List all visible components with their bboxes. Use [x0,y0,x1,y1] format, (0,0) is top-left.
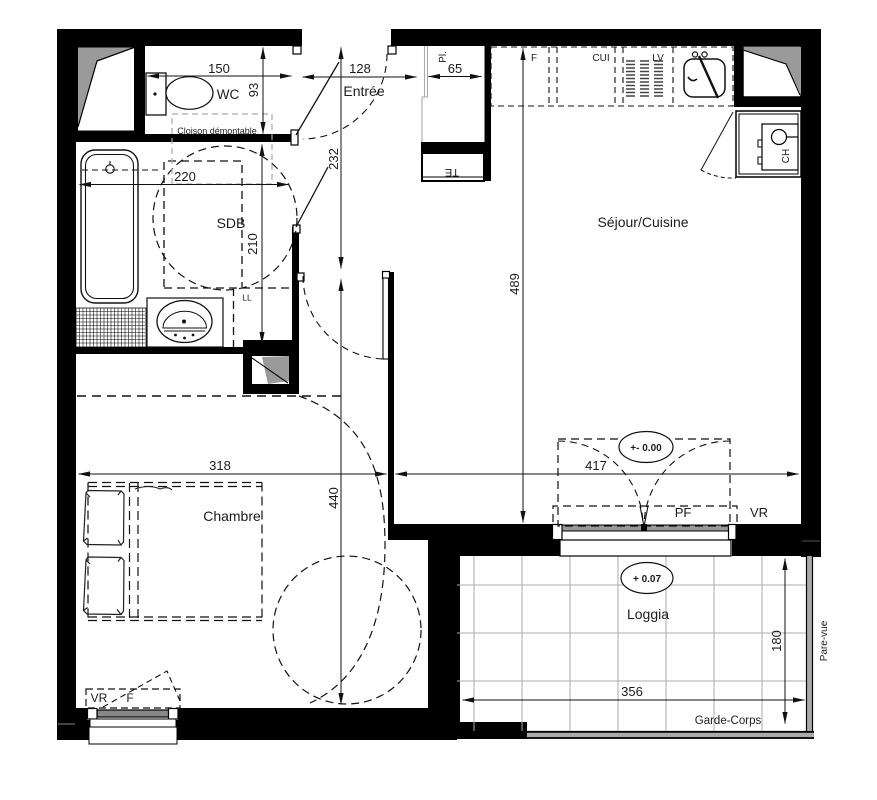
svg-text:Cloison démontable: Cloison démontable [177,126,257,136]
svg-text:150: 150 [208,61,230,76]
svg-text:65: 65 [448,61,462,76]
svg-text:+ 0.07: + 0.07 [633,574,662,585]
svg-text:PF: PF [675,505,692,520]
svg-text:CUI: CUI [592,53,609,64]
svg-text:489: 489 [507,273,522,295]
svg-text:Chambre: Chambre [203,508,261,524]
svg-text:LV: LV [652,53,664,64]
svg-text:440: 440 [326,487,341,509]
svg-text:93: 93 [246,83,261,97]
svg-text:VR: VR [91,691,108,705]
svg-text:F: F [126,691,133,705]
svg-text:Garde-Corps: Garde-Corps [695,715,762,727]
svg-text:LL: LL [242,293,252,303]
svg-text:Séjour/Cuisine: Séjour/Cuisine [597,214,688,230]
svg-text:220: 220 [174,169,196,184]
svg-text:417: 417 [585,458,607,473]
svg-text:Pare-vue: Pare-vue [819,620,830,661]
svg-text:CH: CH [781,149,792,163]
svg-text:210: 210 [245,233,260,255]
svg-text:Loggia: Loggia [627,606,669,622]
svg-text:TE: TE [445,166,459,178]
svg-text:WC: WC [217,87,240,102]
svg-text:Pl.: Pl. [438,51,449,63]
svg-text:232: 232 [326,148,341,170]
svg-text:356: 356 [621,684,643,699]
svg-text:F: F [531,53,537,64]
svg-text:318: 318 [209,458,231,473]
svg-text:VR: VR [750,505,768,520]
svg-text:SDB: SDB [217,215,246,231]
svg-text:180: 180 [769,630,784,652]
svg-text:128: 128 [349,61,371,76]
svg-text:+- 0.00: +- 0.00 [630,443,662,454]
svg-text:Entrée: Entrée [343,83,384,99]
